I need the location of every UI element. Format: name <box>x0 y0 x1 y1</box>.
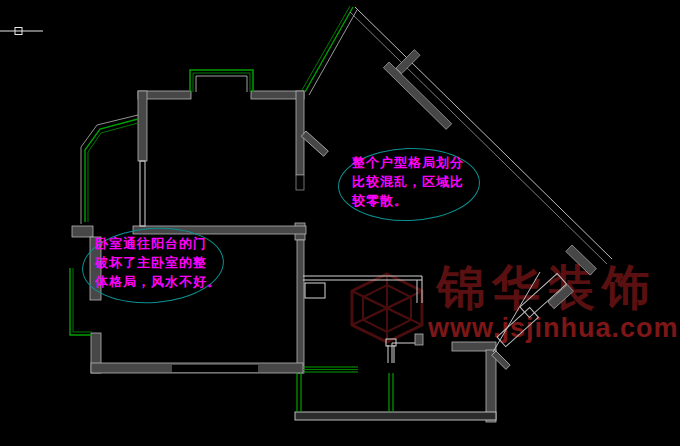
wall-stub <box>396 50 420 74</box>
wall-end-cap <box>296 175 304 190</box>
layout-note-text: 整个户型格局划分 比较混乱，区域比 较零散。 <box>352 153 464 210</box>
kitchen-walls <box>452 342 510 422</box>
diagonal-wall-edge <box>350 12 607 264</box>
layout-note-line1: 整个户型格局划分 <box>352 153 464 172</box>
balcony-door <box>140 161 145 226</box>
bedroom-door-opening <box>172 365 258 372</box>
wall <box>297 240 304 373</box>
fixture <box>305 283 325 298</box>
bedroom-note-line3: 体格局，风水不好。 <box>95 272 221 291</box>
entry-door-leaf <box>497 308 538 347</box>
layout-note-line3: 较零散。 <box>352 191 464 210</box>
bedroom-note-line2: 破坏了主卧室的整 <box>95 253 221 272</box>
diagonal-wall-edge <box>309 10 357 95</box>
diagonal-window <box>305 7 353 92</box>
wall <box>296 91 304 175</box>
wall <box>72 226 93 237</box>
bedroom-note-line1: 卧室通往阳台的门 <box>95 234 221 253</box>
door-leaf <box>301 131 328 156</box>
wall-block <box>415 334 423 345</box>
bottom-balcony-wall <box>295 412 496 420</box>
wall <box>138 91 147 161</box>
bedroom-note-text: 卧室通往阳台的门 破坏了主卧室的整 体格局，风水不好。 <box>95 234 221 291</box>
diagonal-window <box>302 6 350 90</box>
top-bay-window <box>190 70 253 92</box>
bathroom-partitions <box>303 276 422 363</box>
cad-drawing-canvas[interactable]: 锦华装饰 www.jsjinhua.com <box>0 0 680 446</box>
layout-note-line2: 比较混乱，区域比 <box>352 172 464 191</box>
cad-crosshair-cursor <box>0 28 43 35</box>
diagonal-wall-edge <box>355 7 612 259</box>
diagonal-wall-segment <box>383 62 451 129</box>
bottom-windows <box>297 367 393 412</box>
entry-passage <box>493 272 573 352</box>
left-balcony-window <box>81 115 138 224</box>
floor-plan <box>0 0 680 446</box>
diagonal-wing <box>302 6 612 275</box>
wall <box>486 350 496 422</box>
